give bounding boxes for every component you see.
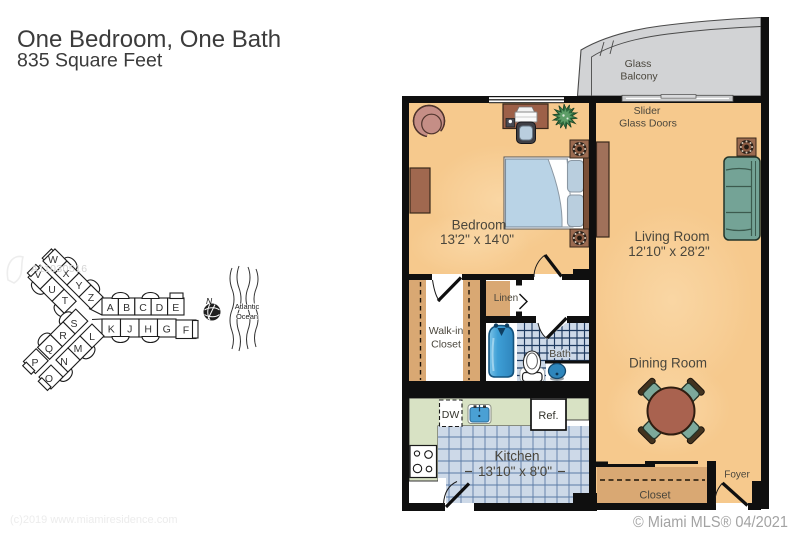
svg-text:G: G — [163, 324, 171, 336]
svg-text:Kitchen: Kitchen — [494, 449, 539, 464]
svg-text:U: U — [48, 284, 56, 296]
svg-text:Glass: Glass — [625, 58, 652, 70]
svg-text:Closet: Closet — [639, 490, 670, 502]
svg-text:E: E — [172, 302, 179, 314]
svg-text:Q: Q — [45, 343, 53, 355]
svg-text:Bath: Bath — [549, 348, 571, 360]
svg-text:Atlantic: Atlantic — [235, 302, 260, 311]
svg-text:J: J — [127, 324, 132, 336]
svg-text:A11030516: A11030516 — [31, 263, 88, 275]
svg-text:Closet: Closet — [431, 339, 461, 351]
svg-text:P: P — [31, 357, 38, 369]
svg-text:13'10" x 8'0": 13'10" x 8'0" — [478, 464, 552, 479]
svg-text:© Miami MLS® 04/2021: © Miami MLS® 04/2021 — [633, 514, 788, 531]
svg-text:H: H — [144, 324, 152, 336]
svg-text:S: S — [70, 318, 77, 330]
svg-text:M: M — [74, 343, 83, 355]
svg-text:13'2" x 14'0": 13'2" x 14'0" — [440, 232, 514, 247]
svg-text:F: F — [183, 325, 189, 337]
svg-text:DW: DW — [442, 409, 460, 421]
svg-text:Living Room: Living Room — [634, 229, 709, 244]
svg-text:Dining Room: Dining Room — [629, 356, 707, 371]
svg-text:L: L — [89, 331, 95, 343]
svg-text:Balcony: Balcony — [620, 71, 658, 83]
svg-text:B: B — [123, 302, 130, 314]
svg-text:T: T — [62, 295, 69, 307]
svg-text:O: O — [45, 373, 53, 385]
svg-text:Ref.: Ref. — [538, 410, 558, 422]
svg-text:(c)2019 www.miamiresidence.com: (c)2019 www.miamiresidence.com — [10, 514, 178, 526]
svg-text:K: K — [108, 324, 115, 336]
svg-text:835 Square Feet: 835 Square Feet — [17, 50, 163, 72]
svg-text:A: A — [107, 302, 114, 314]
svg-text:12'10" x 28'2": 12'10" x 28'2" — [628, 244, 710, 259]
svg-text:N: N — [60, 356, 68, 368]
svg-text:Linen: Linen — [494, 293, 518, 304]
svg-text:Bedroom: Bedroom — [452, 218, 507, 233]
svg-text:Walk-in: Walk-in — [429, 325, 464, 337]
svg-text:R: R — [59, 330, 67, 342]
svg-text:Ocean: Ocean — [236, 312, 258, 321]
svg-text:Glass Doors: Glass Doors — [619, 118, 677, 130]
svg-text:Foyer: Foyer — [724, 470, 750, 481]
svg-text:C: C — [139, 302, 147, 314]
svg-text:Slider: Slider — [634, 105, 661, 117]
svg-text:Z: Z — [88, 292, 95, 304]
svg-text:Y: Y — [75, 280, 82, 292]
svg-text:D: D — [156, 302, 164, 314]
